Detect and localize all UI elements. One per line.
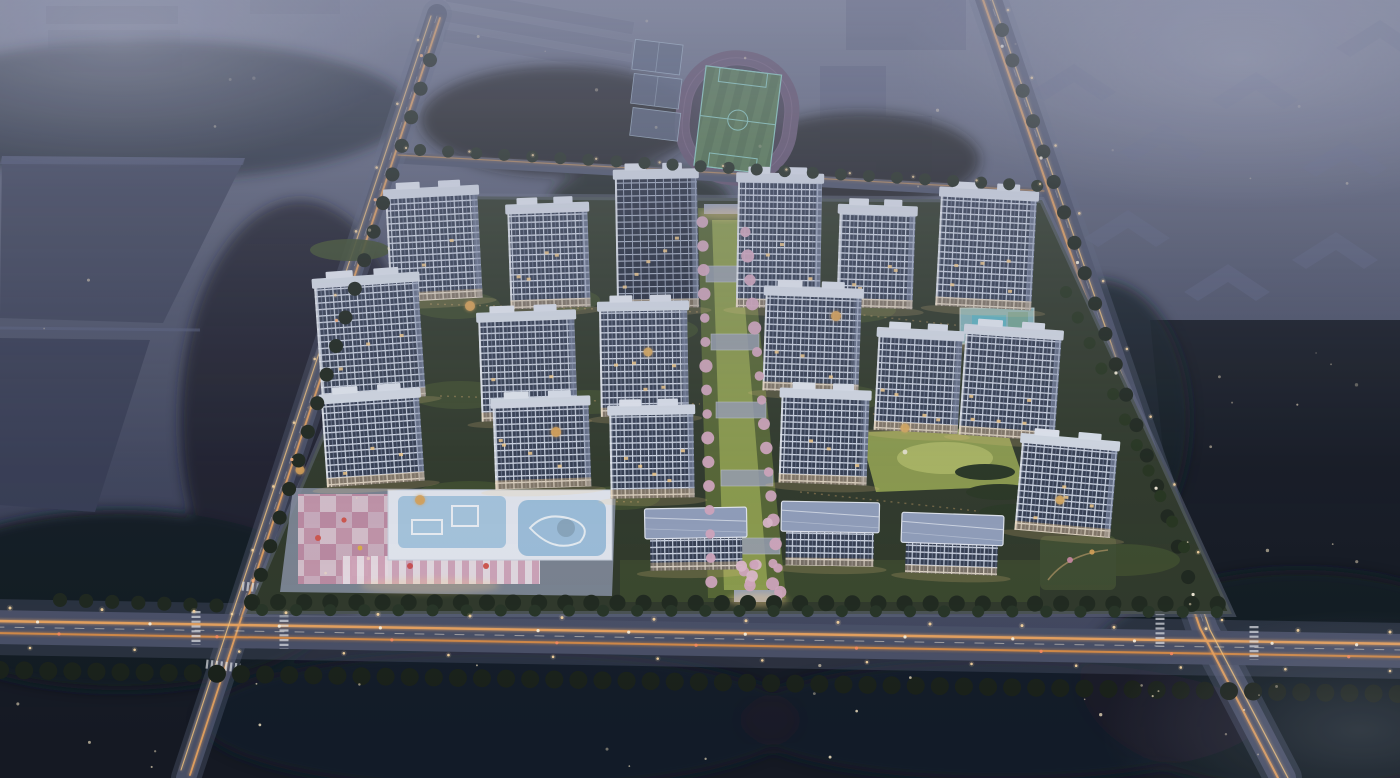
fog-overlays (0, 0, 1400, 778)
scene-canvas (0, 0, 1400, 778)
aerial-rendering (0, 0, 1400, 778)
